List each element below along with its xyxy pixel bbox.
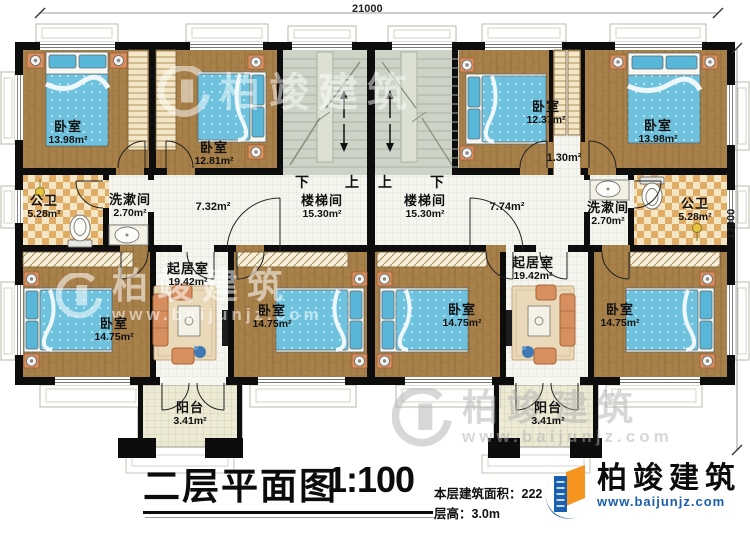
- company-website: www.baijunjz.com: [597, 495, 741, 508]
- stair-up-label-right: 上: [378, 172, 392, 192]
- room-label-toilet-right: 公卫5.28m²: [678, 197, 711, 223]
- company-logo-icon: [540, 462, 592, 524]
- company-logo: 柏竣建筑 www.baijunjz.com: [540, 462, 741, 524]
- sofa-set-left: [153, 285, 216, 364]
- room-label-toilet-left: 公卫5.28m²: [27, 194, 60, 220]
- room-label-niche-right: 1.30m²: [547, 152, 582, 164]
- stair-down-label-left: 下: [295, 172, 309, 192]
- stair-down-label-right: 下: [430, 172, 444, 192]
- plan-scale: 1:100: [327, 459, 414, 501]
- floor-area-text: 本层建筑面积：222: [434, 483, 542, 502]
- room-label-hall-right: 7.74m²: [490, 201, 525, 213]
- plan-title: 二层平面图: [143, 456, 338, 510]
- room-label-bedroom-c: 卧室14.75m²: [94, 317, 133, 343]
- floorplan-page: 柏竣建筑 柏竣建筑 www.baijunjz.com 柏竣建筑 www.baij…: [0, 0, 750, 540]
- room-label-bedroom-d: 卧室14.75m²: [252, 304, 291, 330]
- room-label-bedroom-f: 卧室13.98m²: [638, 119, 677, 145]
- room-label-bedroom-b: 卧室12.81m²: [194, 141, 233, 167]
- room-label-stair-right: 楼梯间15.30m²: [404, 194, 446, 220]
- room-label-balcony-left: 阳台3.41m²: [173, 401, 206, 427]
- sofa-set-right: [512, 285, 575, 364]
- title-underline-shadow: [145, 517, 435, 518]
- room-label-living-right: 起居室19.42m²: [512, 256, 554, 282]
- room-label-living-left: 起居室19.42m²: [167, 262, 209, 288]
- room-label-bedroom-r1: 卧室14.75m²: [442, 303, 481, 329]
- tv-right: [506, 310, 512, 346]
- room-label-hall-left: 7.32m²: [196, 201, 231, 213]
- room-label-bedroom-a: 卧室13.98m²: [48, 120, 87, 146]
- dimension-right: 12000: [725, 209, 737, 240]
- room-label-balcony-right: 阳台3.41m²: [531, 401, 564, 427]
- dimension-top: 21000: [352, 3, 383, 15]
- stair-up-label-left: 上: [345, 172, 359, 192]
- floor-height-text: 层高：3.0m: [434, 503, 500, 522]
- sink-left-fixture: [109, 225, 148, 245]
- company-name: 柏竣建筑: [597, 462, 741, 495]
- tv-left: [222, 310, 228, 346]
- room-label-stair-left: 楼梯间15.30m²: [301, 194, 343, 220]
- room-label-bedroom-r2: 卧室14.75m²: [600, 303, 639, 329]
- room-label-wash-right: 洗漱间2.70m²: [587, 201, 629, 227]
- room-label-bedroom-e: 卧室12.37m²: [526, 100, 565, 126]
- sink-right-fixture: [590, 180, 629, 200]
- room-label-wash-left: 洗漱间2.70m²: [109, 193, 151, 219]
- title-underline: [143, 511, 433, 514]
